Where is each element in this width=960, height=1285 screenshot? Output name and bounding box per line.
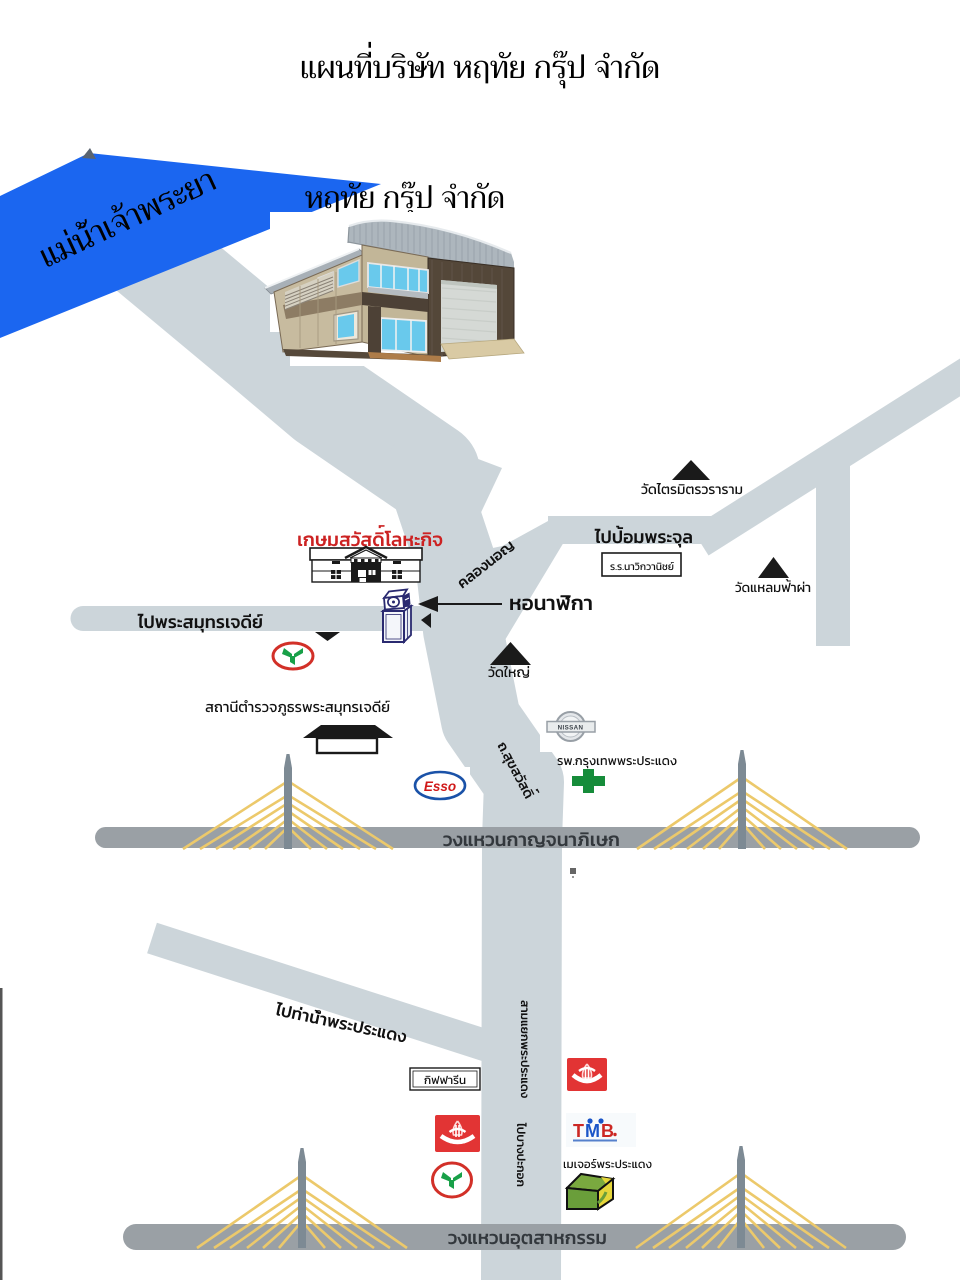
svg-text:Esso: Esso — [424, 779, 456, 794]
svg-text:NISSAN: NISSAN — [558, 725, 584, 732]
svg-text:M: M — [585, 1121, 600, 1141]
svg-text:B: B — [601, 1121, 614, 1141]
svg-text:T: T — [573, 1121, 584, 1141]
